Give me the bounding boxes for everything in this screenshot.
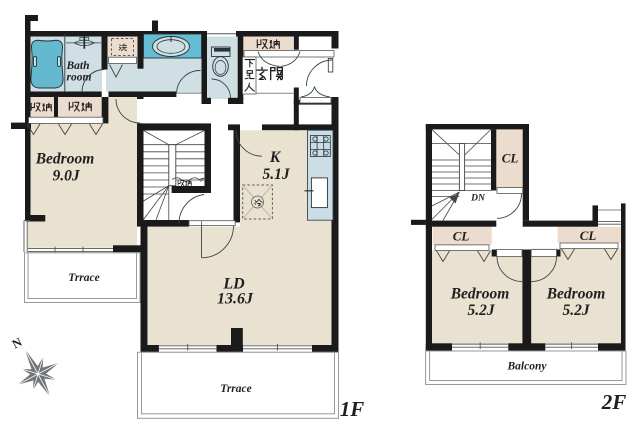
- svg-text:Bath: Bath: [65, 60, 89, 72]
- svg-text:CL: CL: [502, 151, 519, 166]
- svg-text:2F: 2F: [601, 390, 627, 414]
- svg-text:5.1J: 5.1J: [262, 166, 290, 183]
- svg-text:Bedroom: Bedroom: [450, 286, 510, 303]
- svg-text:room: room: [67, 72, 92, 84]
- svg-text:Trrace: Trrace: [220, 383, 252, 395]
- svg-text:Trrace: Trrace: [68, 272, 100, 284]
- svg-text:Bedroom: Bedroom: [546, 286, 606, 303]
- svg-text:13.6J: 13.6J: [217, 291, 254, 308]
- svg-text:5.2J: 5.2J: [467, 302, 495, 319]
- svg-text:CL: CL: [580, 228, 597, 243]
- svg-text:1F: 1F: [340, 397, 365, 421]
- svg-text:Bedroom: Bedroom: [35, 151, 95, 168]
- svg-text:9.0J: 9.0J: [52, 168, 80, 185]
- svg-text:DN: DN: [470, 194, 486, 204]
- svg-text:K: K: [269, 149, 282, 166]
- svg-text:Balcony: Balcony: [507, 361, 548, 373]
- svg-text:CL: CL: [453, 229, 470, 244]
- svg-text:5.2J: 5.2J: [562, 302, 590, 319]
